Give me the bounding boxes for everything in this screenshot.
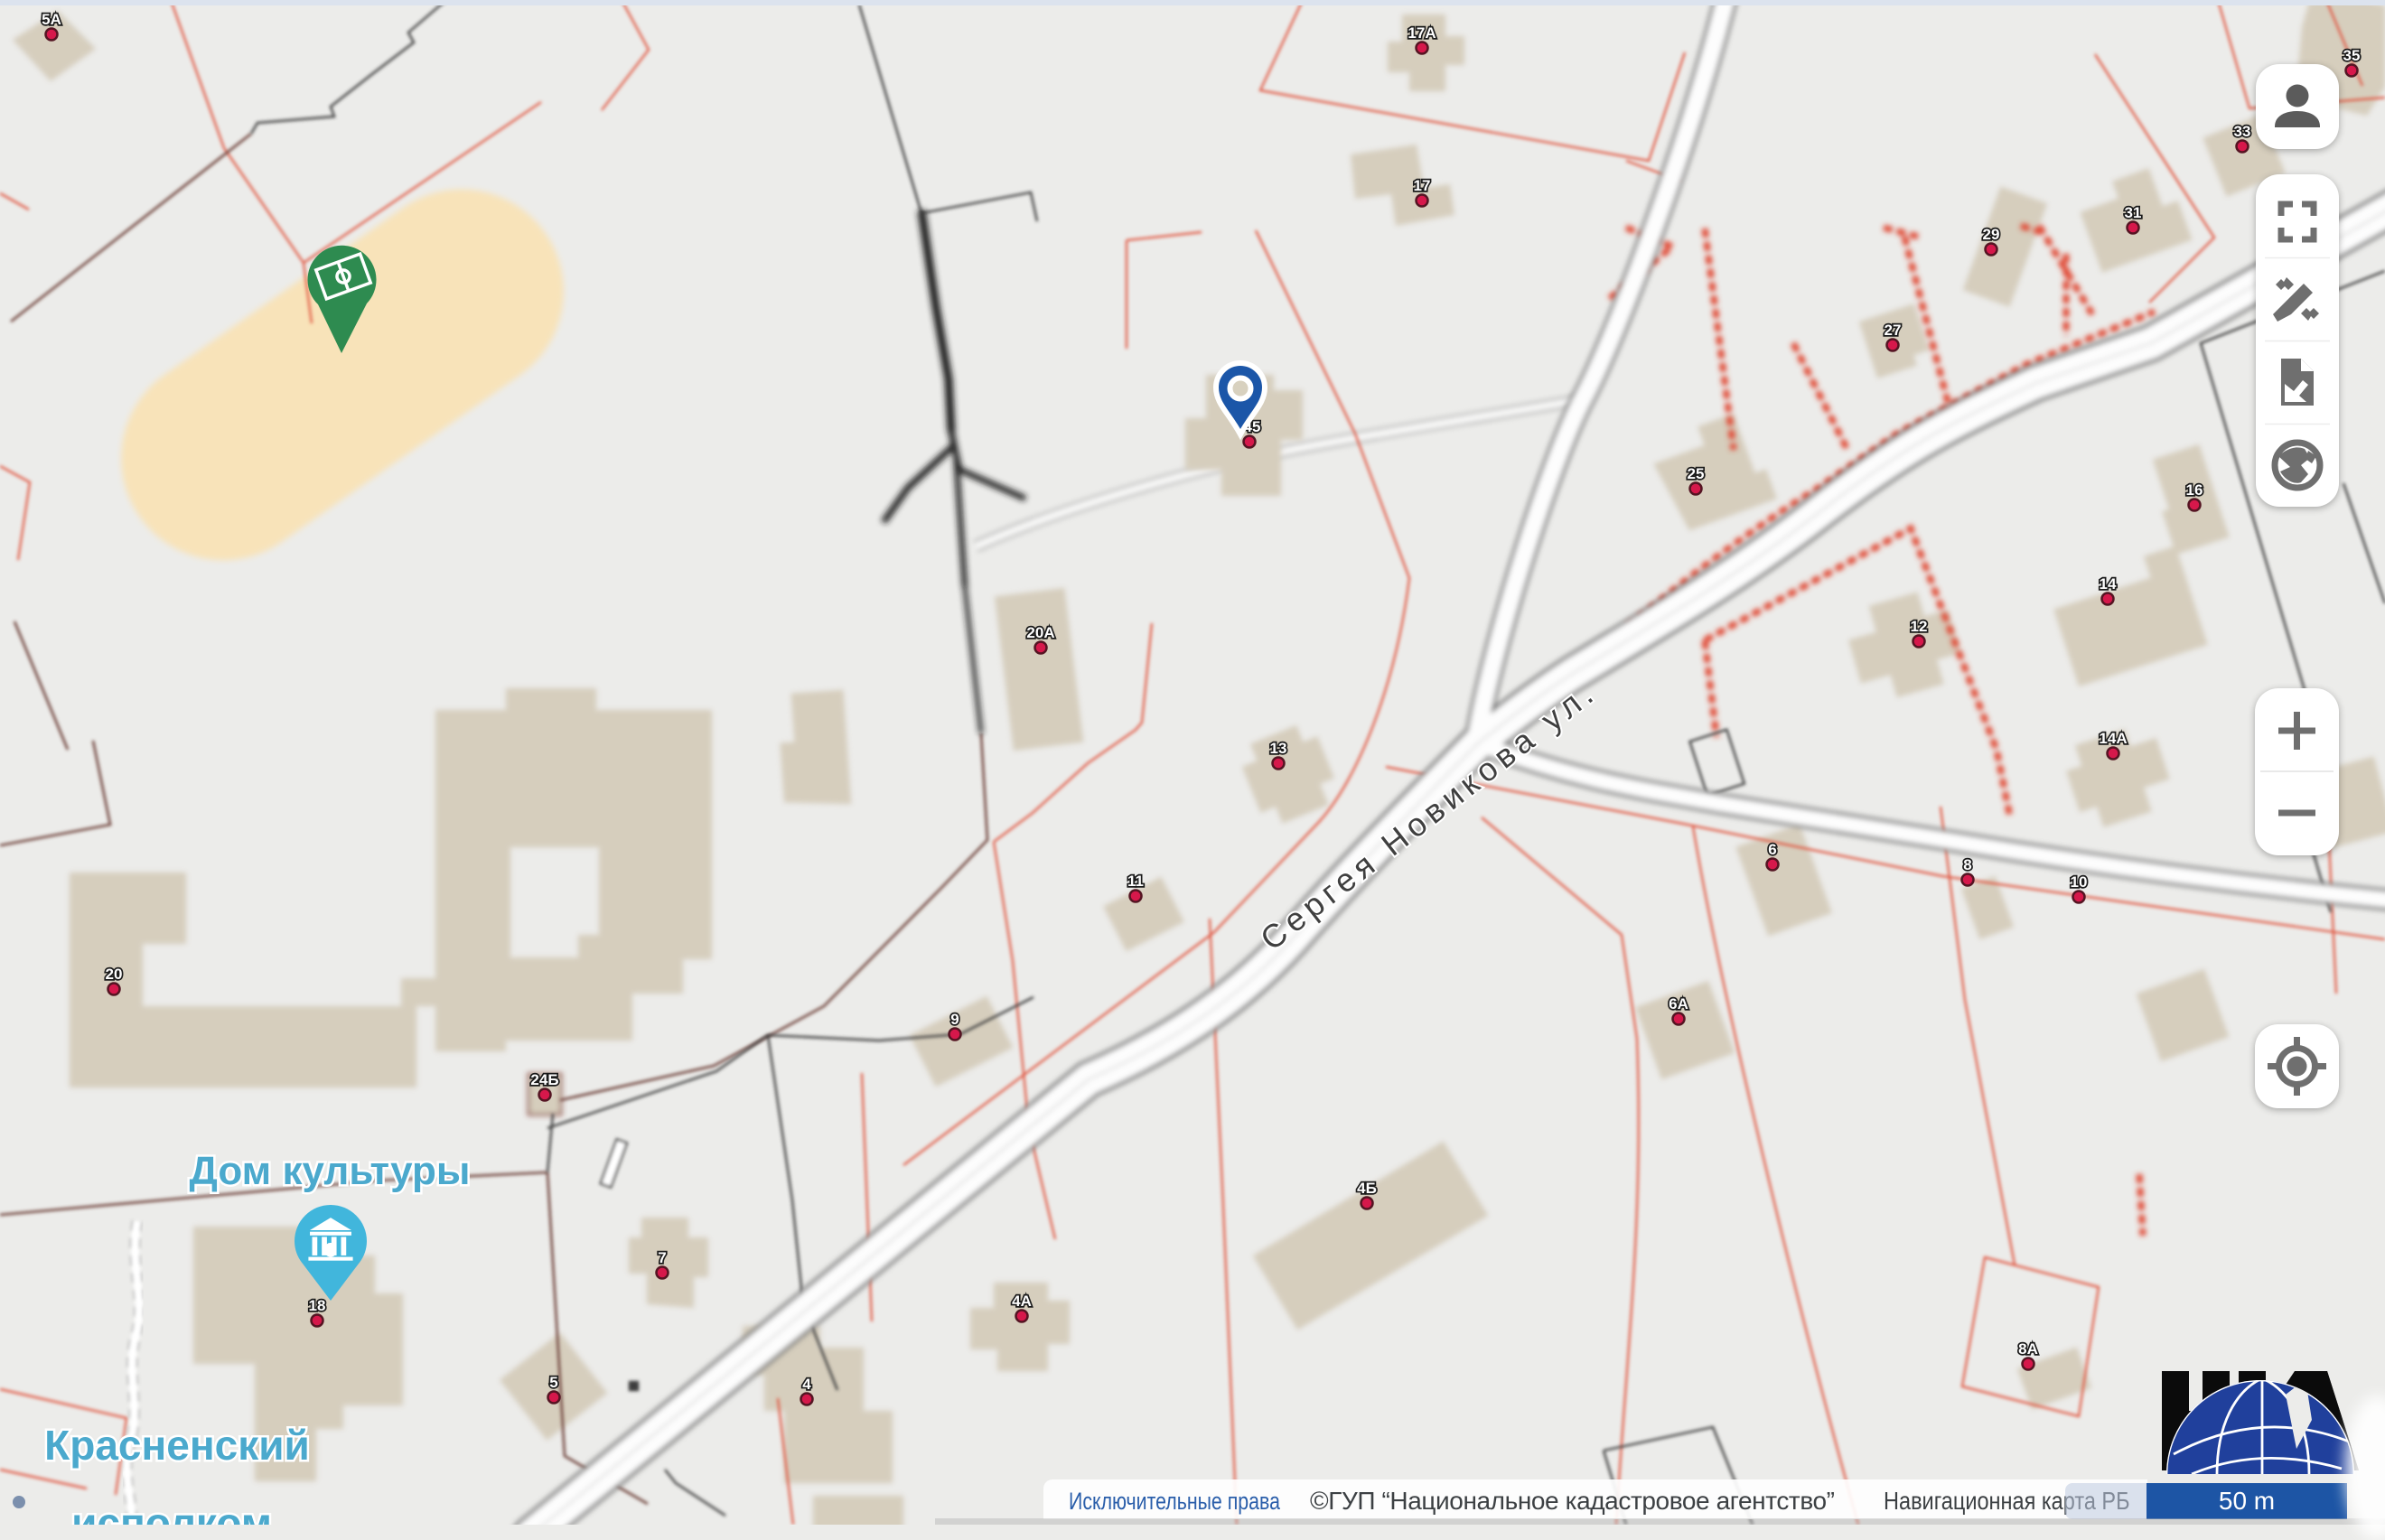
svg-text:27: 27	[1885, 322, 1902, 339]
svg-text:6A: 6A	[1669, 995, 1688, 1013]
svg-text:14: 14	[2100, 575, 2117, 593]
svg-text:13: 13	[1270, 740, 1287, 757]
svg-text:4Б: 4Б	[1357, 1180, 1377, 1197]
svg-text:17A: 17A	[1408, 24, 1436, 42]
svg-text:5A: 5A	[42, 11, 61, 28]
svg-text:35: 35	[2343, 47, 2361, 64]
svg-text:31: 31	[2125, 204, 2142, 221]
svg-text:8A: 8A	[2018, 1340, 2038, 1358]
svg-text:16: 16	[2186, 481, 2203, 499]
svg-text:29: 29	[1983, 226, 2000, 243]
svg-text:24Б: 24Б	[530, 1071, 558, 1088]
svg-text:4: 4	[802, 1376, 811, 1393]
svg-text:Дом культуры: Дом культуры	[190, 1149, 471, 1193]
svg-text:20A: 20A	[1026, 624, 1054, 641]
svg-text:Красненский: Красненский	[44, 1422, 310, 1469]
svg-text:12: 12	[1911, 618, 1928, 635]
svg-text:9: 9	[950, 1011, 959, 1028]
svg-text:25: 25	[1688, 465, 1705, 482]
svg-text:8: 8	[1963, 856, 1971, 873]
svg-text:14A: 14A	[2099, 730, 2127, 747]
svg-text:11: 11	[1127, 873, 1144, 890]
svg-text:20: 20	[106, 966, 123, 983]
svg-text:исполком: исполком	[71, 1499, 272, 1525]
svg-text:4A: 4A	[1012, 1293, 1032, 1310]
svg-text:6: 6	[1768, 841, 1776, 858]
svg-text:17: 17	[1414, 177, 1431, 194]
svg-text:33: 33	[2234, 123, 2251, 140]
svg-text:10: 10	[2071, 873, 2088, 891]
svg-text:7: 7	[658, 1249, 666, 1266]
svg-text:5: 5	[549, 1374, 557, 1391]
svg-text:18: 18	[309, 1297, 326, 1314]
